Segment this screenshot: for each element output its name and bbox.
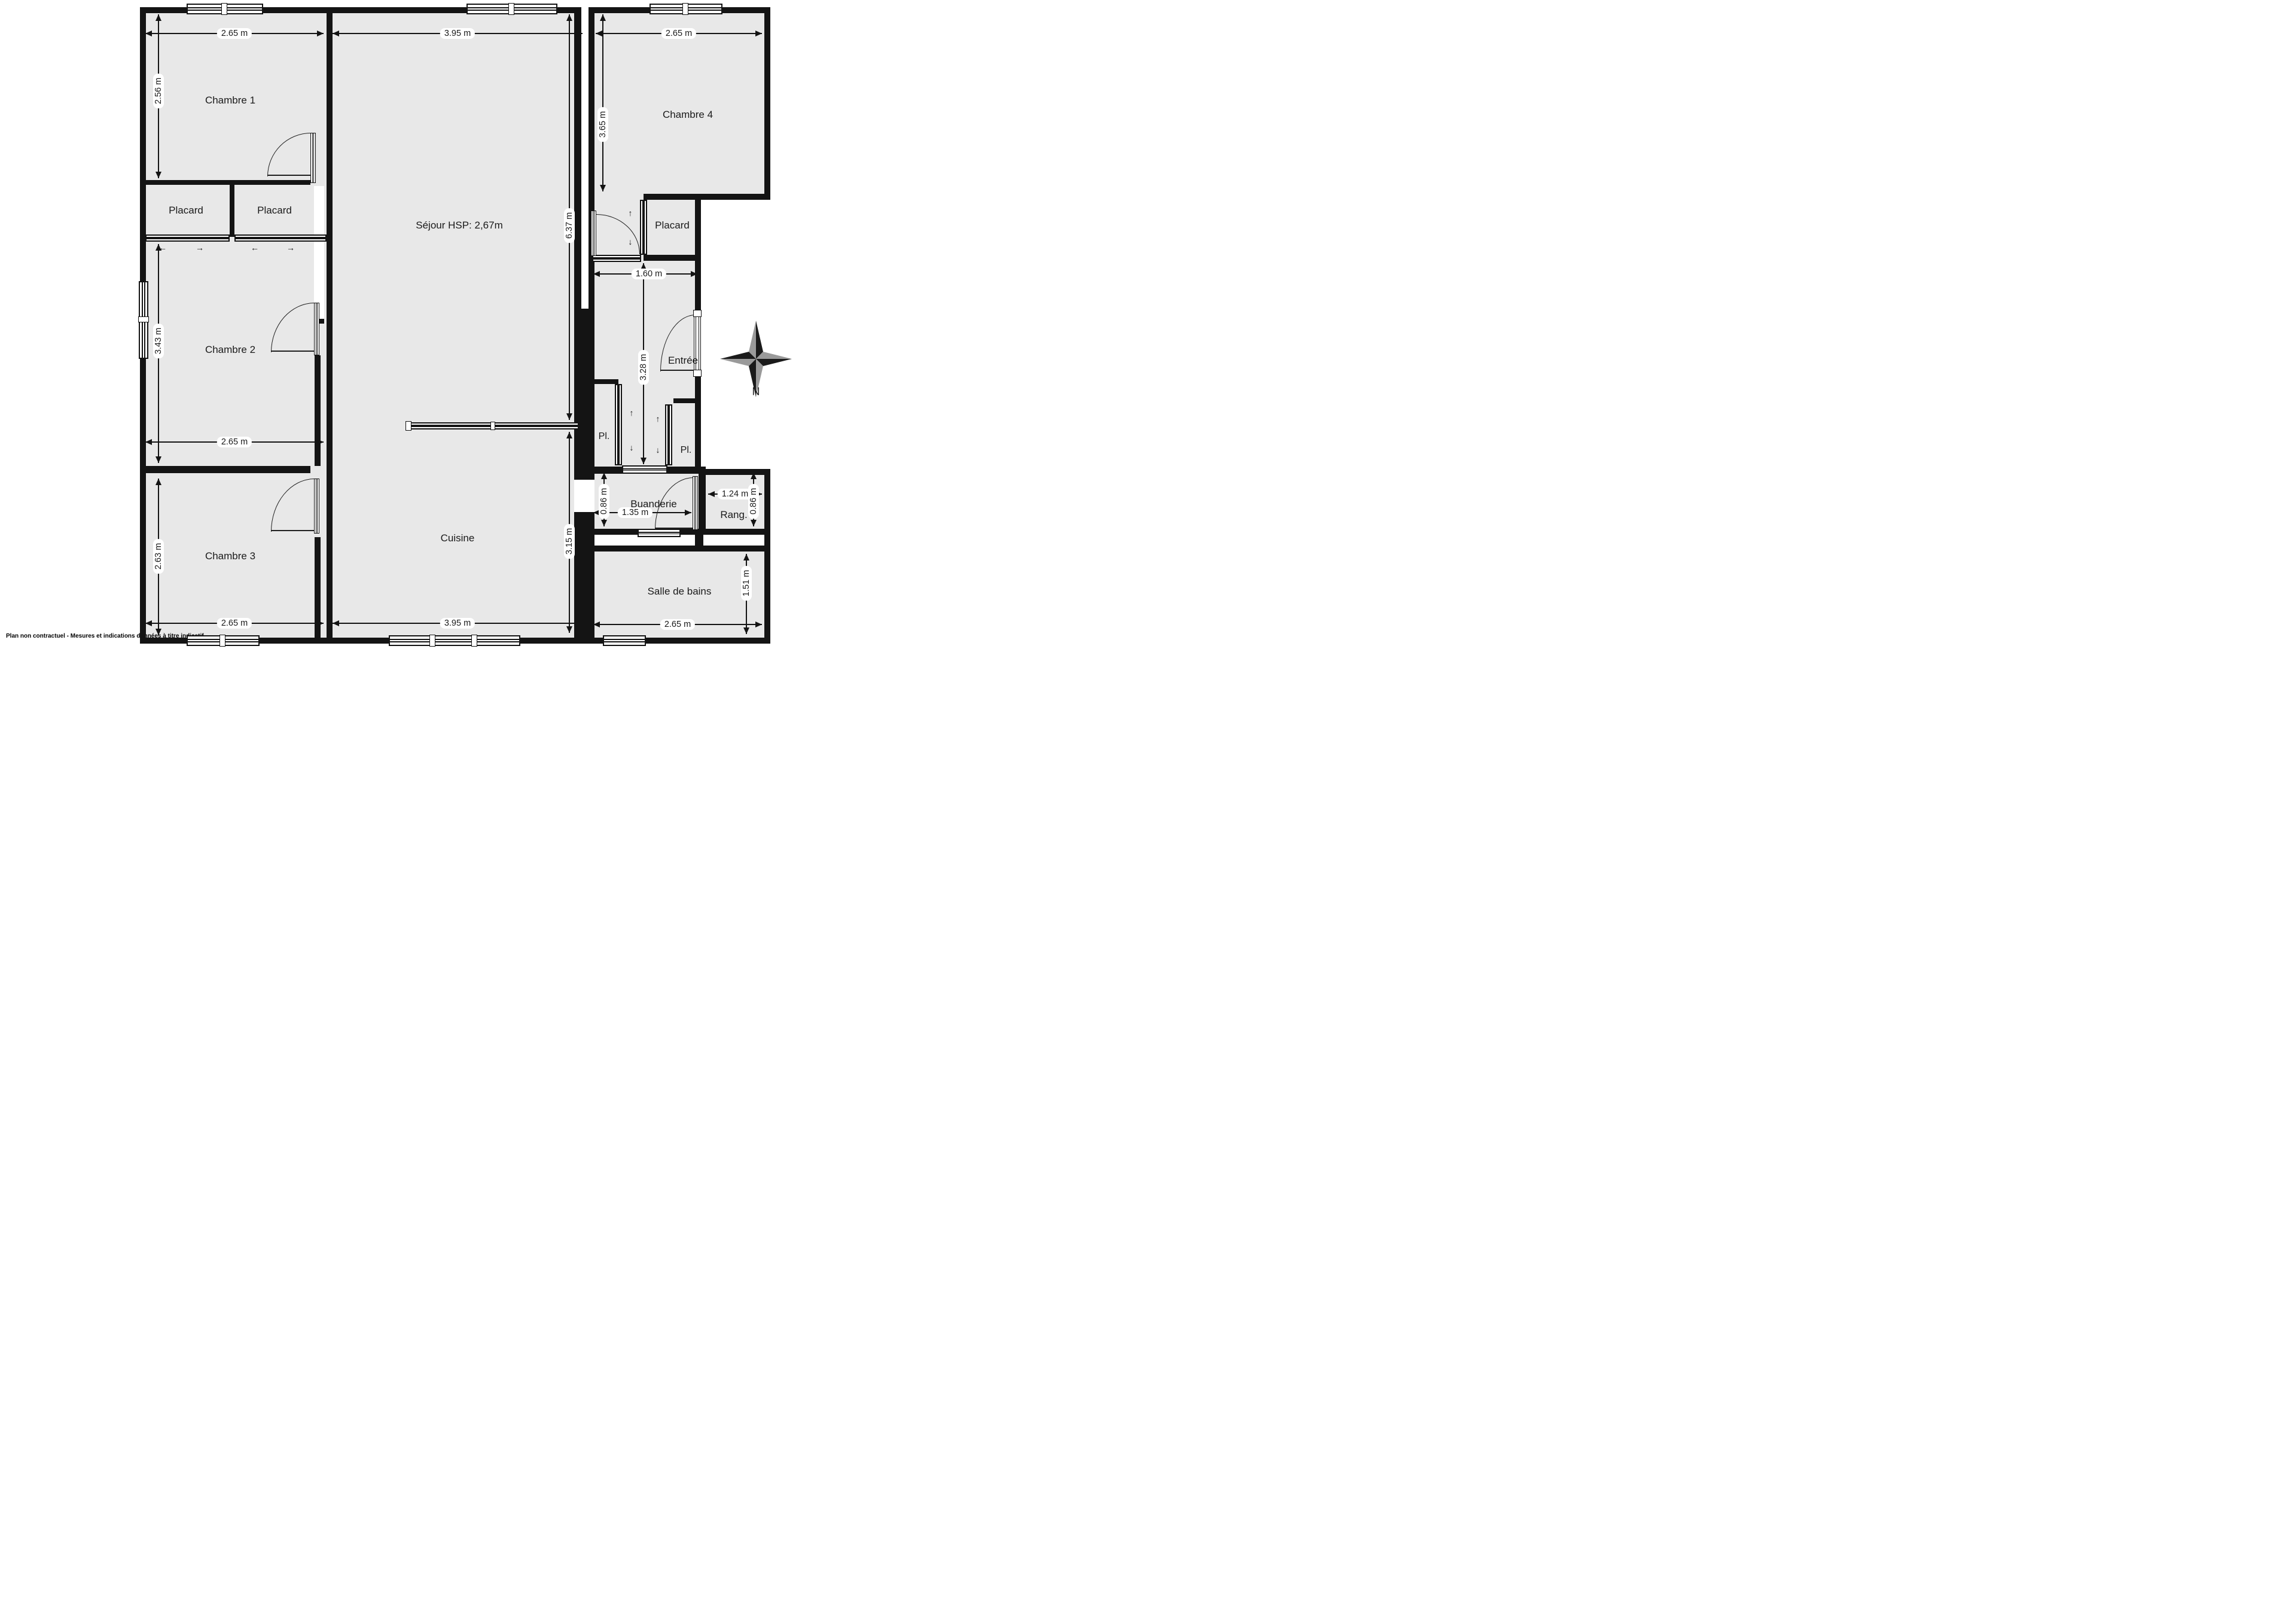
opening-line-bottom <box>574 512 594 513</box>
dim-sdb-width: 2.65 m <box>660 619 695 630</box>
room-label-sejour: Séjour HSP: 2,67m <box>416 220 503 231</box>
room-label-placard-droit: Placard <box>257 205 292 217</box>
room-label-placard4: Placard <box>655 220 690 231</box>
slide-arrow-right-icon: → <box>196 243 204 252</box>
dim-rang-width: 1.24 m <box>718 489 752 499</box>
window-cuisine-divider2 <box>471 635 477 647</box>
room-label-chambre1: Chambre 1 <box>205 95 255 106</box>
wall-buanderie-rang-divider <box>699 467 706 535</box>
dim-chambre1-width: 2.65 m <box>217 28 252 39</box>
window-chambre1-divider <box>221 3 227 15</box>
wall-chambre4-right <box>764 7 770 200</box>
window-cuisine-divider1 <box>429 635 435 647</box>
wall-chambre4-step <box>644 194 770 200</box>
dim-entree-height: 3.28 m <box>638 350 649 385</box>
door-chord-chambre3 <box>271 530 314 531</box>
dim-chambre2-height: 3.43 m <box>153 324 164 358</box>
dim-cuisine-width: 3.95 m <box>440 618 475 629</box>
dim-chambre4-height: 3.65 m <box>597 107 608 142</box>
door-sill-chambre4 <box>592 255 641 262</box>
wall-chambre2-3-divider <box>145 466 310 473</box>
room-label-cuisine: Cuisine <box>441 532 475 544</box>
wall-sdb-top <box>589 546 770 552</box>
slide-arrow-left-icon: ← <box>158 243 167 252</box>
dim-sejour-width: 3.95 m <box>440 28 475 39</box>
door-chambre4 <box>591 211 596 256</box>
partition-cap-mid <box>490 422 495 430</box>
wall-chambre1-bottom <box>145 180 310 185</box>
wall-pl-left-top <box>591 379 618 384</box>
room-label-chambre4: Chambre 4 <box>663 109 713 121</box>
door-chambre3 <box>314 479 319 534</box>
wall-below-c3-door <box>315 537 321 638</box>
dim-sdb-height: 1.51 m <box>741 566 752 601</box>
sliding-door-placard-droit <box>234 234 327 242</box>
slide-arrow-up-icon: ↑ <box>630 409 634 417</box>
dim-cuisine-height: 3.15 m <box>564 524 575 559</box>
door-chord-buanderie <box>655 528 693 529</box>
window-cuisine <box>389 635 520 646</box>
room-label-pl-droit: Pl. <box>681 445 692 456</box>
wall-pl-right-top <box>673 398 701 403</box>
dim-chambre3-height: 2.63 m <box>153 539 164 574</box>
wall-rang-right <box>764 469 770 644</box>
room-label-placard-gauche: Placard <box>169 205 203 217</box>
opening-line-top <box>574 479 594 480</box>
room-label-rangement: Rang. <box>720 509 747 521</box>
dim-sejour-height: 6.37 m <box>564 208 575 243</box>
door-chord-entree <box>660 370 695 371</box>
wall-left-center-divider <box>327 7 333 644</box>
wall-buanderie-bottom-left <box>589 529 638 535</box>
room-label-salle-de-bains: Salle de bains <box>648 586 712 598</box>
wall-buanderie-top-left <box>589 467 622 474</box>
dim-buanderie-height: 0.86 m <box>599 484 609 519</box>
slide-arrow-down-icon: ↓ <box>629 237 633 246</box>
window-chambre4-divider <box>682 3 688 15</box>
wall-rang-bottom <box>701 529 770 535</box>
wall-placard-divider <box>230 185 234 237</box>
compass-north-label: N <box>752 386 760 398</box>
sliding-door-placard-gauche <box>145 234 230 242</box>
sliding-door-pl-droit <box>665 404 672 465</box>
wall-entree-right-lower <box>695 373 701 469</box>
floor-center-wing <box>328 10 581 641</box>
door-chord-chambre1 <box>267 175 310 176</box>
seam-chambre2-top <box>314 186 324 319</box>
slide-arrow-right-icon: → <box>286 243 295 252</box>
door-chord-chambre2 <box>271 351 314 352</box>
dim-chambre2-width: 2.65 m <box>217 437 252 447</box>
threshold-hall-buanderie <box>622 465 667 474</box>
window-chambre3-divider <box>219 635 225 647</box>
wall-below-c2-door <box>315 355 321 466</box>
wall-placard4-bottom <box>644 255 701 261</box>
slide-arrow-up-icon: ↑ <box>656 415 660 423</box>
slide-arrow-up-icon: ↑ <box>629 209 633 217</box>
slide-arrow-down-icon: ↓ <box>656 446 660 454</box>
sliding-door-pl-gauche <box>615 384 622 465</box>
room-label-pl-gauche: Pl. <box>599 431 610 442</box>
sliding-door-placard4 <box>640 200 647 255</box>
opening-cuisine-buanderie <box>574 479 594 513</box>
wall-sejour-right <box>574 7 581 644</box>
slide-arrow-left-icon: ← <box>251 243 259 252</box>
dim-chambre3-width: 2.65 m <box>217 618 252 629</box>
partition-cap-left <box>405 421 411 431</box>
floor-plan: Plan non contractuel - Mesures et indica… <box>0 0 919 650</box>
wall-rang-top <box>701 469 770 475</box>
window-chambre2-divider <box>138 316 149 322</box>
door-chambre2 <box>314 303 319 355</box>
dim-line-chambre4-height <box>602 14 603 191</box>
threshold-buanderie-bottom <box>638 529 681 537</box>
dim-chambre1-height: 2.56 m <box>153 74 164 108</box>
door-entree-cap-bottom <box>693 370 702 377</box>
wall-buanderie-top-right <box>667 467 699 474</box>
door-chambre1 <box>310 133 316 183</box>
room-label-chambre3: Chambre 3 <box>205 550 255 562</box>
window-salle-de-bains <box>603 635 646 646</box>
dim-chambre4-width: 2.65 m <box>661 28 696 39</box>
door-buanderie <box>693 476 698 530</box>
door-entree-cap-top <box>693 310 702 317</box>
window-sejour-divider <box>508 3 514 15</box>
dim-rang-height: 0.86 m <box>748 484 759 519</box>
room-label-entree: Entrée <box>668 355 698 367</box>
wall-seam-fill <box>581 309 589 644</box>
room-label-chambre2: Chambre 2 <box>205 344 255 356</box>
slide-arrow-down-icon: ↓ <box>630 443 634 452</box>
room-label-buanderie: Buanderie <box>630 498 677 510</box>
dim-placard4-width: 1.60 m <box>632 269 666 279</box>
